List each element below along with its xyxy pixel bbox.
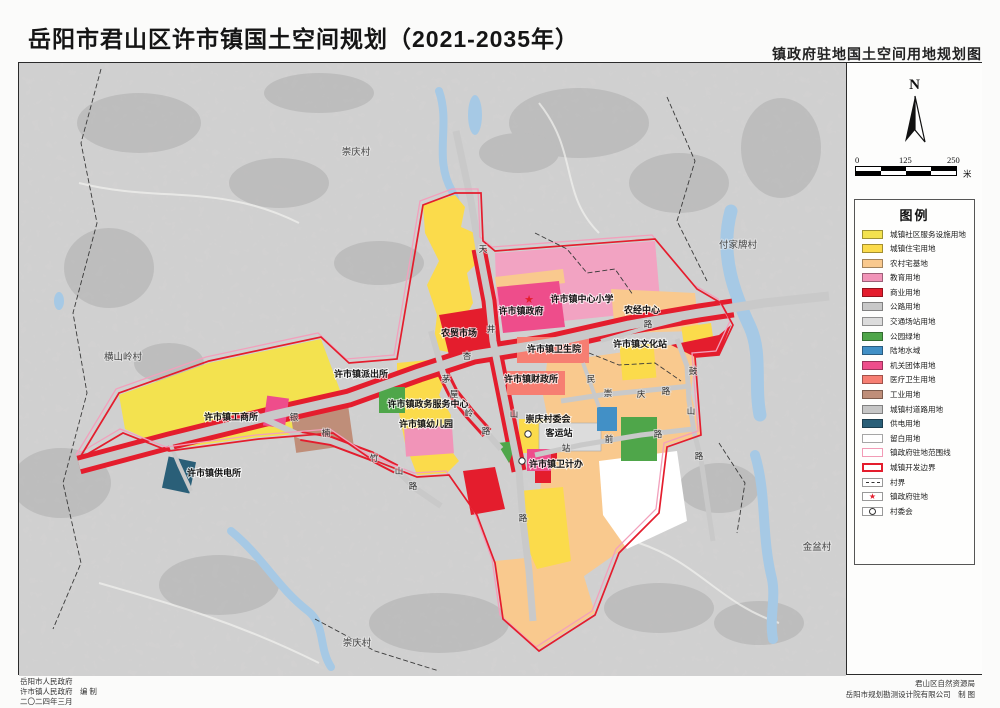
legend-swatch-fill: [862, 434, 883, 443]
legend-swatch-circle: [862, 507, 883, 516]
credit-line: 君山区自然资源局: [846, 679, 975, 690]
legend-swatch-fill: [862, 375, 883, 384]
legend-swatch-fill: [862, 405, 883, 414]
legend-label: 镇政府驻地: [890, 491, 928, 502]
legend-row: 交通场站用地: [862, 317, 974, 327]
legend-row: 城镇村道路用地: [862, 404, 974, 414]
legend-label: 商业用地: [890, 287, 920, 298]
scale-tick-0: 0: [855, 155, 859, 165]
block-kindergarten: [404, 425, 454, 456]
legend-row: 镇政府驻地范围线: [862, 448, 974, 458]
legend-label: 交通场站用地: [890, 316, 936, 327]
road-name-char: 茅: [442, 374, 451, 384]
facility-label: 许市镇财政所: [504, 373, 558, 384]
legend-row: 公路用地: [862, 302, 974, 312]
map-margin-panel: N 0 125 250 米 图例 城镇社区服务设施用地城镇住宅用地农村宅基地教育…: [846, 63, 982, 674]
road-name-char: 站: [562, 443, 571, 453]
legend-row: 村委会: [862, 506, 974, 516]
legend-label: 教育用地: [890, 272, 920, 283]
legend-row: 城镇社区服务设施用地: [862, 229, 974, 239]
legend-title: 图例: [855, 205, 974, 224]
legend-row: ★镇政府驻地: [862, 492, 974, 502]
legend-swatch-fill: [862, 346, 883, 355]
legend-label: 农村宅基地: [890, 258, 928, 269]
block-water-pond: [597, 407, 617, 431]
legend-label: 城镇村道路用地: [890, 404, 943, 415]
compass-north-label: N: [847, 77, 982, 94]
scale-bar-graphic: [855, 166, 957, 176]
zone-residential-east1: [620, 344, 657, 381]
road-name-char: 庆: [637, 389, 646, 399]
facility-label: 许市镇政务服务中心: [387, 398, 468, 409]
road-name-char: 岭: [465, 408, 474, 418]
scale-tick-250: 250: [947, 155, 960, 165]
legend-swatch-fill: [862, 361, 883, 370]
legend-row: 城镇开发边界: [862, 463, 974, 473]
facility-label: 客运站: [544, 427, 572, 438]
road-name-char: 路: [654, 429, 663, 439]
page-subtitle: 镇政府驻地国土空间用地规划图: [772, 44, 982, 64]
road-name-char: 井: [487, 324, 496, 334]
road-name-char: 山: [510, 409, 519, 419]
legend-label: 镇政府驻地范围线: [890, 447, 951, 458]
legend-label: 机关团体用地: [890, 360, 936, 371]
road-name-char: 路: [482, 426, 491, 436]
credit-line: 岳阳市规划勘测设计院有限公司 制 图: [846, 690, 975, 701]
facility-label: 许市镇中心小学: [550, 293, 613, 304]
facility-label: 农贸市场: [440, 327, 477, 338]
village-label: 付家牌村: [719, 239, 758, 251]
legend-items: 城镇社区服务设施用地城镇住宅用地农村宅基地教育用地商业用地公路用地交通场站用地公…: [855, 229, 974, 516]
legend-label: 陆地水域: [890, 345, 920, 356]
road-name-char: 路: [644, 319, 653, 329]
legend-swatch-fill: [862, 273, 883, 282]
planning-map-canvas: ★ 银杏楠竹山路天井山路茅屋岭路鼓山路崇庆路站前路民路 崇庆村付家牌村横山岭村金…: [19, 63, 846, 676]
credits-right: 君山区自然资源局 岳阳市规划勘测设计院有限公司 制 图: [846, 679, 975, 700]
legend-label: 城镇社区服务设施用地: [890, 229, 966, 240]
road-name-char: 山: [687, 406, 696, 416]
legend-label: 医疗卫生用地: [890, 374, 936, 385]
scale-bar: 0 125 250 米: [855, 155, 977, 176]
facility-label: 许市镇卫生院: [527, 343, 581, 354]
road-name-char: 楠: [322, 428, 331, 438]
village-label: 崇庆村: [343, 637, 372, 649]
legend-swatch-fill: [862, 390, 883, 399]
road-name-char: 民: [587, 374, 596, 384]
legend-label: 留白用地: [890, 433, 920, 444]
scale-unit: 米: [963, 168, 972, 180]
legend-row: 供电用地: [862, 419, 974, 429]
legend-label: 城镇开发边界: [890, 462, 936, 473]
credit-line: 岳阳市人民政府: [20, 677, 97, 687]
credit-line: 许市镇人民政府 编 制: [20, 687, 97, 697]
legend-row: 公园绿地: [862, 331, 974, 341]
legend-label: 供电用地: [890, 418, 920, 429]
road-name-char: 山: [395, 466, 404, 476]
facility-label: 许市镇政府: [498, 305, 543, 316]
legend-box: 图例 城镇社区服务设施用地城镇住宅用地农村宅基地教育用地商业用地公路用地交通场站…: [854, 199, 975, 565]
legend-label: 工业用地: [890, 389, 920, 400]
town-government-seat-star: ★: [524, 294, 534, 306]
road-name-char: 路: [695, 451, 704, 461]
village-label: 横山岭村: [104, 351, 143, 363]
village-label: 金盆村: [803, 541, 832, 553]
legend-swatch-dash: [862, 478, 883, 487]
legend-swatch-fill: [862, 288, 883, 297]
legend-row: 村界: [862, 477, 974, 487]
legend-row: 陆地水域: [862, 346, 974, 356]
page-title: 岳阳市君山区许市镇国土空间规划（2021-2035年）: [28, 20, 579, 54]
legend-swatch-fill: [862, 317, 883, 326]
road-name-char: 鼓: [689, 366, 698, 376]
legend-row: 教育用地: [862, 273, 974, 283]
facility-label: 许市镇幼儿园: [399, 418, 453, 429]
facility-label: 许市镇文化站: [613, 338, 667, 349]
legend-row: 机关团体用地: [862, 360, 974, 370]
road-name-char: 竹: [370, 453, 379, 463]
legend-swatch-fill: [862, 259, 883, 268]
road-name-char: 路: [662, 386, 671, 396]
road-name-char: 天: [479, 244, 488, 254]
legend-swatch-fill: [862, 419, 883, 428]
legend-row: 医疗卫生用地: [862, 375, 974, 385]
road-name-char: 路: [409, 481, 418, 491]
road-name-char: 银: [290, 412, 299, 422]
road-name-char: 路: [519, 513, 528, 523]
legend-row: 农村宅基地: [862, 258, 974, 268]
scale-bar-ticks: 0 125 250: [855, 155, 977, 166]
legend-label: 公园绿地: [890, 331, 920, 342]
road-name-char: 前: [605, 434, 614, 444]
legend-row: 城镇住宅用地: [862, 244, 974, 254]
road-name-char: 崇: [604, 388, 613, 398]
legend-label: 城镇住宅用地: [890, 243, 936, 254]
legend-row: 留白用地: [862, 433, 974, 443]
legend-label: 公路用地: [890, 301, 920, 312]
facility-label: 许市镇供电所: [187, 467, 241, 478]
village-committee-symbol: [525, 431, 531, 437]
legend-row: 商业用地: [862, 287, 974, 297]
compass: N: [847, 77, 982, 151]
legend-swatch-outline-thick: [862, 463, 883, 472]
facility-label: 崇庆村委会: [525, 413, 571, 424]
legend-row: 工业用地: [862, 390, 974, 400]
road-name-char: 屋: [450, 389, 459, 399]
legend-swatch-star: ★: [862, 492, 883, 501]
legend-swatch-fill: [862, 244, 883, 253]
village-committee-symbol: [519, 458, 525, 464]
legend-swatch-fill: [862, 230, 883, 239]
legend-swatch-outline: [862, 448, 883, 457]
legend-swatch-fill: [862, 302, 883, 311]
facility-label: 许市镇派出所: [334, 368, 388, 379]
legend-label: 村界: [890, 477, 905, 488]
scale-tick-125: 125: [899, 155, 912, 165]
map-sheet-frame: ★ 银杏楠竹山路天井山路茅屋岭路鼓山路崇庆路站前路民路 崇庆村付家牌村横山岭村金…: [18, 62, 982, 675]
credits-left: 岳阳市人民政府 许市镇人民政府 编 制 二〇二四年三月: [20, 677, 97, 707]
facility-label: 农经中心: [623, 304, 660, 315]
legend-label: 村委会: [890, 506, 913, 517]
village-label: 崇庆村: [342, 146, 371, 158]
facility-label: 许市镇卫计办: [529, 458, 583, 469]
north-arrow-icon: [895, 94, 935, 146]
legend-swatch-fill: [862, 332, 883, 341]
planning-map-sheet: { "page": { "title": "岳阳市君山区许市镇国土空间规划（20…: [0, 0, 1000, 708]
facility-label: 许市镇工商所: [204, 411, 258, 422]
road-name-char: 杏: [463, 351, 472, 361]
planning-map: ★ 银杏楠竹山路天井山路茅屋岭路鼓山路崇庆路站前路民路 崇庆村付家牌村横山岭村金…: [19, 63, 846, 676]
credit-line: 二〇二四年三月: [20, 697, 97, 707]
